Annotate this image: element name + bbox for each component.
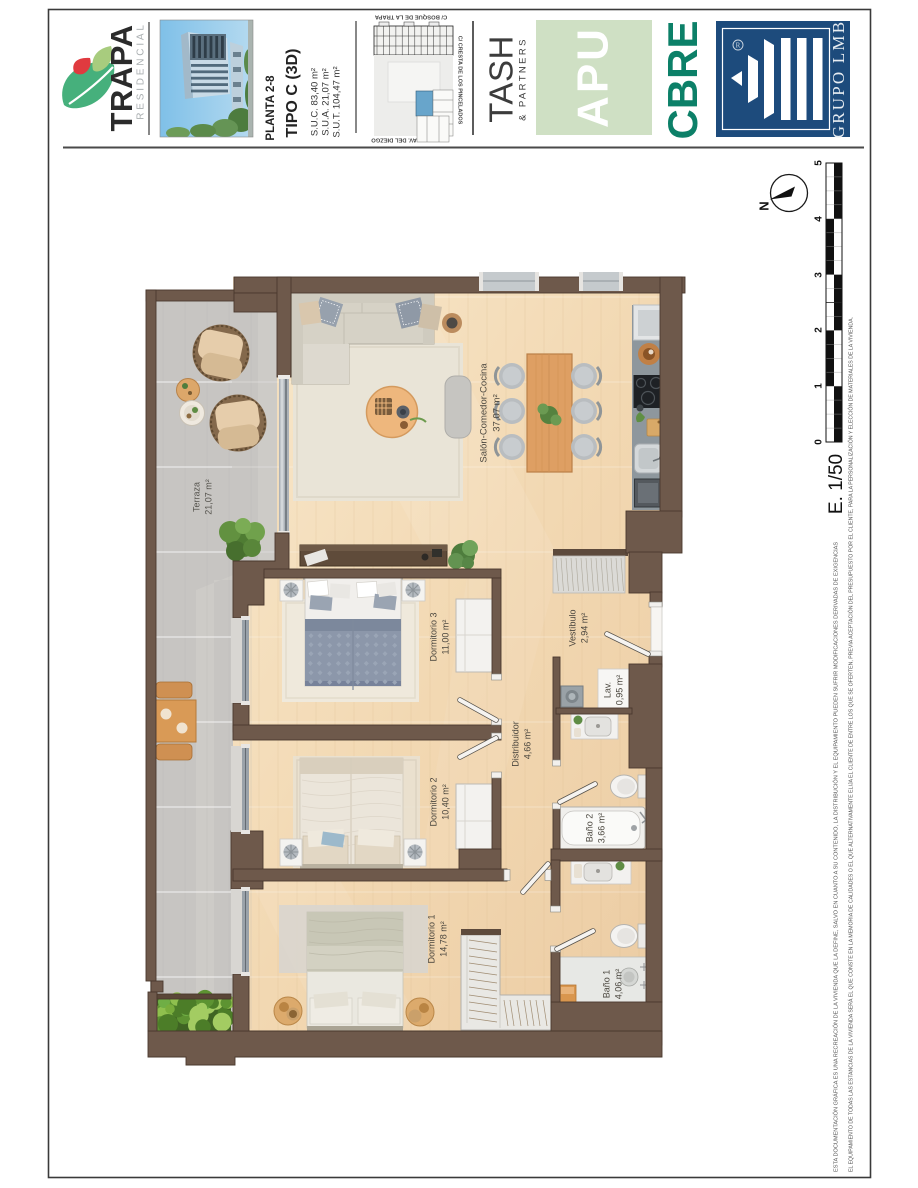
svg-text:& PARTNERS: & PARTNERS xyxy=(518,37,529,121)
svg-text:R: R xyxy=(736,42,741,50)
svg-text:10,40 m²: 10,40 m² xyxy=(440,784,450,820)
svg-text:ESTA DOCUMENTACIÓN GRÁFICA ES: ESTA DOCUMENTACIÓN GRÁFICA ES UNA RECREA… xyxy=(832,542,839,1172)
svg-text:3,66 m²: 3,66 m² xyxy=(596,813,606,844)
svg-text:RESIDENCIAL: RESIDENCIAL xyxy=(136,22,147,120)
svg-text:Baño 2: Baño 2 xyxy=(584,814,594,843)
svg-text:S.U.A. 21,07 m²: S.U.A. 21,07 m² xyxy=(321,68,332,136)
svg-text:37,07 m²: 37,07 m² xyxy=(492,394,503,432)
svg-text:E. 1/50: E. 1/50 xyxy=(826,454,847,514)
svg-text:0,95 m²: 0,95 m² xyxy=(614,675,624,706)
svg-text:Vestíbulo: Vestíbulo xyxy=(567,609,577,646)
svg-text:Dormitorio 3: Dormitorio 3 xyxy=(428,612,438,661)
svg-text:2,94 m²: 2,94 m² xyxy=(579,613,589,644)
svg-text:GRUPO LMB: GRUPO LMB xyxy=(829,20,848,139)
svg-text:Dormitorio 2: Dormitorio 2 xyxy=(428,777,438,826)
svg-text:11,00 m²: 11,00 m² xyxy=(440,620,450,655)
svg-text:4: 4 xyxy=(814,216,825,222)
svg-text:2: 2 xyxy=(814,327,825,333)
svg-text:AV. DEL DIEZGO: AV. DEL DIEZGO xyxy=(371,136,417,142)
svg-text:TASH: TASH xyxy=(483,35,520,123)
svg-text:S.U.C. 83,40 m²: S.U.C. 83,40 m² xyxy=(310,68,321,136)
svg-text:EL EQUIPAMIENTO DE TODAS LAS E: EL EQUIPAMIENTO DE TODAS LAS ESTANCIAS D… xyxy=(847,317,854,1172)
svg-text:3: 3 xyxy=(814,272,825,278)
svg-text:1: 1 xyxy=(814,383,825,389)
svg-text:4,06 m²: 4,06 m² xyxy=(613,969,623,1000)
svg-text:Lav.: Lav. xyxy=(602,682,612,698)
svg-text:Salón-Comedor-Cocina: Salón-Comedor-Cocina xyxy=(479,363,490,463)
svg-text:S.U.T. 104,47 m²: S.U.T. 104,47 m² xyxy=(332,66,343,137)
svg-text:TIPO C (3D): TIPO C (3D) xyxy=(284,49,301,138)
svg-text:5: 5 xyxy=(814,160,825,166)
svg-text:0: 0 xyxy=(814,439,825,445)
svg-text:Baño 1: Baño 1 xyxy=(601,970,611,999)
svg-text:4,66 m²: 4,66 m² xyxy=(522,729,532,760)
svg-text:TRAPA: TRAPA xyxy=(104,25,139,132)
svg-text:Terraza: Terraza xyxy=(191,482,201,512)
svg-text:PLANTA 2-8: PLANTA 2-8 xyxy=(265,75,277,141)
svg-text:Distribuidor: Distribuidor xyxy=(510,721,520,767)
svg-text:14,78 m²: 14,78 m² xyxy=(438,921,448,957)
svg-text:C/ CRESTA DE LOS PINCELADOS: C/ CRESTA DE LOS PINCELADOS xyxy=(457,36,463,125)
svg-text:CBRE: CBRE xyxy=(659,20,706,139)
svg-text:21,07 m²: 21,07 m² xyxy=(203,479,213,515)
svg-text:Dormitorio 1: Dormitorio 1 xyxy=(426,914,436,963)
svg-text:C/ BOSQUE DE LA TRAPA: C/ BOSQUE DE LA TRAPA xyxy=(374,13,447,19)
svg-text:N: N xyxy=(756,201,771,210)
svg-text:APU: APU xyxy=(569,26,618,128)
